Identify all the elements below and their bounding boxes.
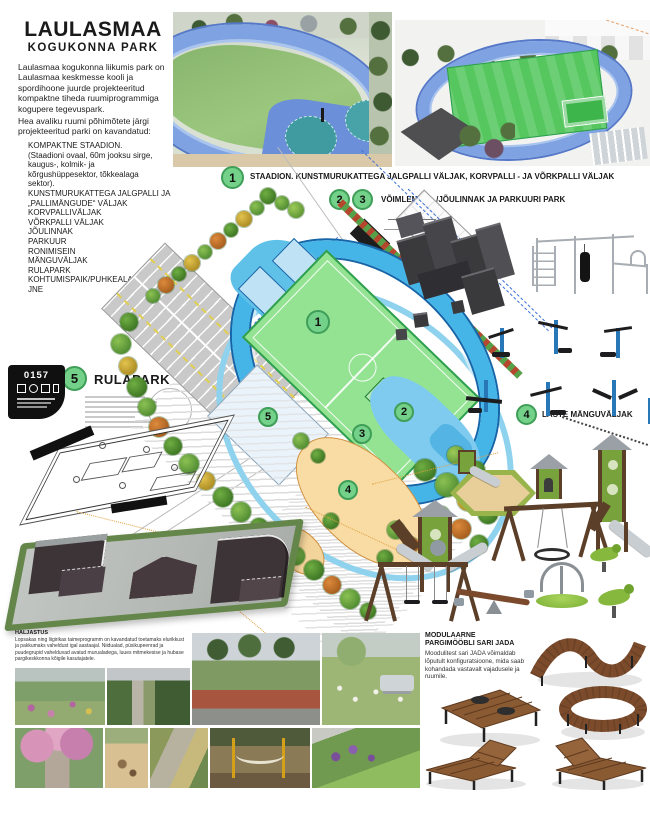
furniture-body: Moodulitest sari JADA võimaldab lõputult… <box>425 650 527 681</box>
tree-column <box>369 12 392 167</box>
machine-post <box>612 380 616 416</box>
intro-paragraph-2: Hea avaliku ruumi põhimõtete järgi proje… <box>18 116 170 137</box>
swing-chain <box>434 566 435 600</box>
machine-lever <box>538 321 568 330</box>
gym-machine <box>600 324 636 364</box>
carousel-disc <box>536 594 588 608</box>
tower-post <box>624 522 628 552</box>
swing-beam <box>504 501 600 511</box>
machine-seat <box>468 408 482 413</box>
porthole <box>430 529 441 540</box>
tree-icon <box>127 377 147 397</box>
hammock-sling <box>236 746 284 764</box>
feature-item: kaugus-, kolmik- ja <box>28 160 176 170</box>
lounger-bench-render <box>548 730 650 792</box>
parking-area <box>589 127 647 165</box>
feature-item: kõrgushüppesektor, tõkkealaga <box>28 170 176 180</box>
pullup-bar <box>536 235 634 242</box>
spring-rider-render <box>588 544 622 578</box>
photo-hammock <box>210 728 310 788</box>
feature-item: (Staadioni ovaal, 60m jooksu sirge, <box>28 151 176 161</box>
playhouse-door <box>544 478 553 492</box>
plan-marker-5: 5 <box>258 407 278 427</box>
callout-circle <box>73 476 80 483</box>
stadium-render-right <box>395 20 650 166</box>
tree-icon <box>224 223 238 237</box>
seesaw-render <box>452 584 536 620</box>
tree-icon <box>236 211 252 227</box>
hoop-pole <box>321 108 324 122</box>
callout-circle <box>171 464 178 471</box>
callout-circle <box>119 482 126 489</box>
gym-machine <box>592 378 636 422</box>
frame-post <box>574 236 576 294</box>
gym-machine <box>466 376 506 418</box>
swing-beam <box>378 562 468 567</box>
tree-icon <box>250 201 264 215</box>
porthole <box>607 484 618 495</box>
swing-leg <box>379 564 397 621</box>
furniture-heading-1: MODULAARNE <box>425 632 535 639</box>
swing-rope <box>537 508 544 548</box>
seesaw-base <box>486 600 502 614</box>
hammock-post <box>232 738 235 778</box>
tree-icon <box>198 245 212 259</box>
photo-street-plantings <box>192 633 320 725</box>
machine-seat <box>558 348 572 353</box>
greenery-heading: HALJASTUS <box>15 630 185 636</box>
machine-lever <box>618 388 638 400</box>
bag-rope <box>584 244 585 252</box>
callout-circle <box>99 442 106 449</box>
rider-spring <box>602 562 606 572</box>
tree-icon <box>275 196 289 210</box>
frame-post <box>646 264 648 294</box>
swing-chain <box>446 566 447 600</box>
stadium-render-left <box>173 12 392 167</box>
plan-marker-2: 2 <box>394 402 414 422</box>
machine-seat <box>600 352 616 357</box>
porthole <box>608 460 618 470</box>
calisthenics-render <box>526 220 650 315</box>
swing-leg <box>506 507 525 562</box>
tree-icon <box>210 233 226 249</box>
swing-seat <box>432 600 448 604</box>
photo-tree-alley <box>107 668 190 725</box>
punching-bag <box>580 252 590 282</box>
swing-seat <box>404 600 420 604</box>
feature-item: KOMPAKTNE STAADION. <box>28 141 176 151</box>
skate-ramp <box>239 576 282 602</box>
swing-rope <box>561 508 568 548</box>
parkour-cube <box>451 300 465 314</box>
photo-blossom-trees <box>15 728 103 788</box>
machine-post <box>484 380 488 412</box>
photo-bench-wildflowers <box>322 633 420 725</box>
gym-machine <box>538 318 572 360</box>
rider-head <box>624 584 634 594</box>
page-title: LAULASMAA <box>18 18 168 42</box>
furniture-heading-2: PARGIMÖÖBLI SARI JADA <box>425 640 535 647</box>
plan-marker-4: 4 <box>338 480 358 500</box>
seesaw-handle <box>524 590 534 598</box>
greenery-body: Lopsakas ning liigirikas taimeprogramm o… <box>15 637 187 662</box>
tree-icon <box>111 334 131 354</box>
wall-bars-ladder <box>532 246 556 286</box>
gym-machine <box>486 324 520 364</box>
crawl-tube <box>430 540 446 556</box>
photo-gravel-path <box>150 728 208 788</box>
carousel-render <box>536 560 590 610</box>
tree-icon <box>288 202 304 218</box>
poster-board: LAULASMAA KOGUKONNA PARK Laulasmaa koguk… <box>0 0 650 815</box>
white-bench <box>380 675 414 691</box>
seesaw-handle <box>454 598 464 606</box>
skate-ramp <box>58 565 105 596</box>
rider-head <box>612 544 621 553</box>
frame-arch <box>630 250 646 266</box>
plan-marker-3: 3 <box>352 424 372 444</box>
plan-marker-1: 1 <box>306 310 330 334</box>
parkour-cube <box>413 312 429 328</box>
page-subtitle: KOGUKONNA PARK <box>18 42 168 54</box>
rider-spring <box>612 606 616 618</box>
photo-flowerbed-lawn <box>312 728 420 788</box>
swing-chain <box>418 566 419 600</box>
photo-sand-play <box>105 728 148 788</box>
tower-roof <box>412 500 458 517</box>
spring-rider-render <box>596 584 636 624</box>
lounger-bench-render <box>420 734 538 792</box>
photo-meadow-building <box>15 668 105 725</box>
tree-icon <box>260 188 276 204</box>
parkour-cube <box>396 329 408 341</box>
skatepark-drawing <box>15 430 240 530</box>
machine-seat <box>550 410 566 415</box>
intro-paragraph-1: Laulasmaa kogukonna liikumis park on Lau… <box>18 62 170 114</box>
tree-icon <box>119 357 137 375</box>
machine-seat <box>492 352 510 357</box>
tree-cluster <box>455 116 515 166</box>
callout-circle <box>143 446 150 453</box>
skatepark-render <box>8 520 304 632</box>
machine-post <box>616 328 620 358</box>
swing-chain <box>406 566 407 600</box>
machine-lever <box>592 388 612 400</box>
playhouse-roof <box>530 454 568 469</box>
tennis-court <box>562 95 609 127</box>
tower-roof <box>592 434 632 450</box>
